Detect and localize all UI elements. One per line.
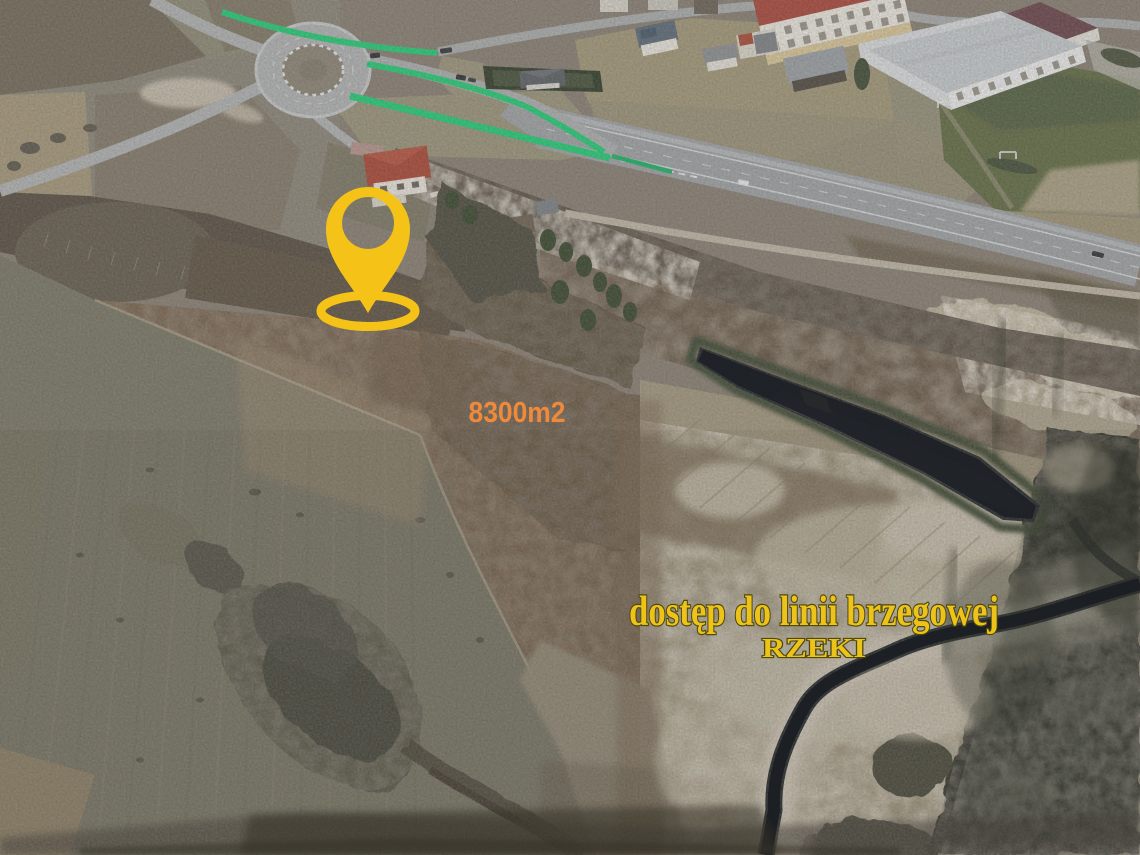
svg-text:dostęp do linii brzegowej: dostęp do linii brzegowej	[629, 589, 999, 635]
svg-text:8300m2: 8300m2	[469, 397, 566, 429]
svg-text:RZEKI: RZEKI	[762, 633, 866, 663]
